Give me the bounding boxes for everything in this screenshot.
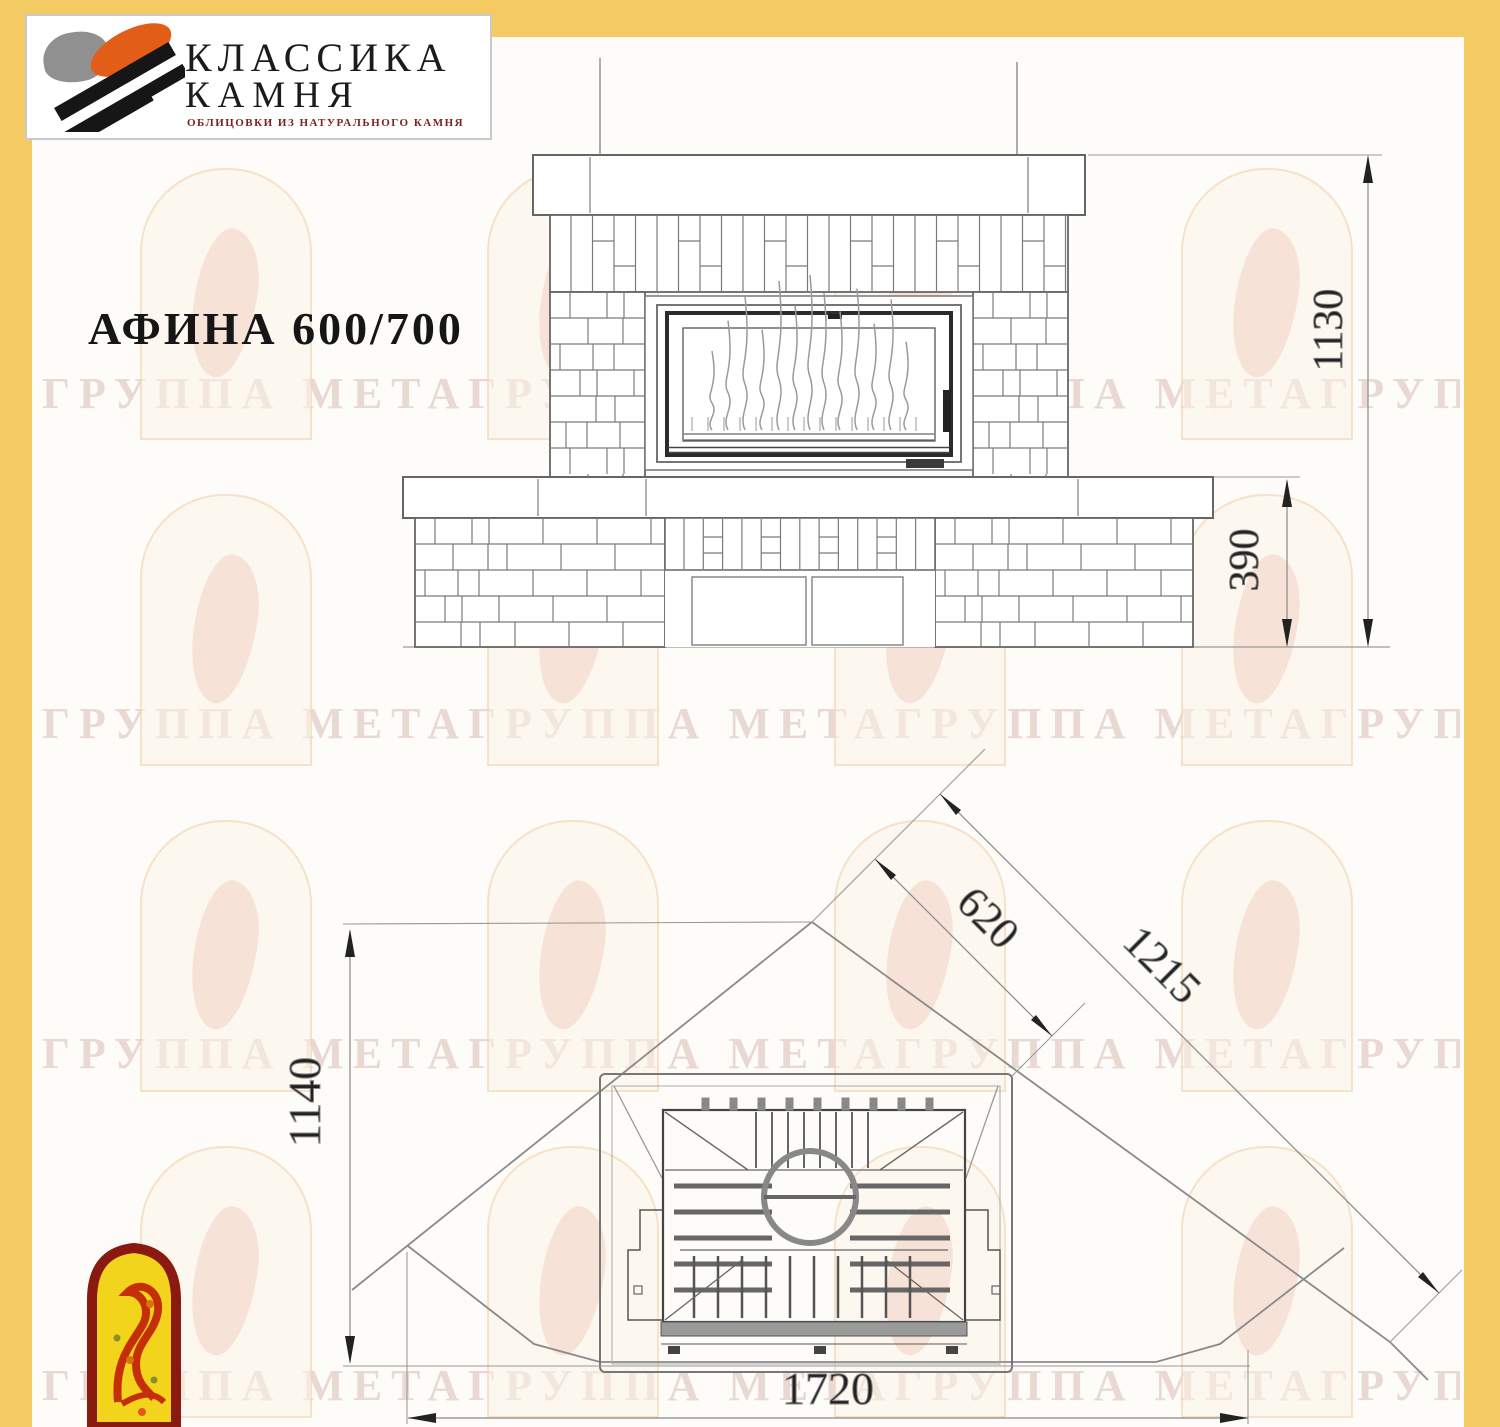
wall-right — [812, 922, 1428, 1380]
dim-label-total-height: 1130 — [1306, 289, 1352, 371]
frame-left — [0, 0, 32, 1427]
stone-base-right — [935, 518, 1193, 647]
firebox-insert — [645, 275, 973, 470]
plan-view-drawing: 1140 1720 620 — [279, 749, 1462, 1424]
stone-base-left — [415, 518, 665, 647]
door-handle — [943, 390, 951, 432]
insert-plan — [628, 1098, 1000, 1354]
logo-tagline: ОБЛИЦОВКИ ИЗ НАТУРАЛЬНОГО КАМНЯ — [187, 117, 464, 129]
wall-left — [352, 922, 812, 1290]
dimension-620-1215: 620 1215 — [812, 749, 1462, 1342]
logo-text-line2: КАМНЯ — [185, 74, 361, 117]
wood-niche-right — [812, 577, 903, 645]
frame-right — [1464, 0, 1500, 1427]
dim-label-corner-to-insert: 620 — [948, 877, 1029, 958]
wood-niche-left — [692, 577, 806, 645]
stone-emblem-icon — [35, 22, 185, 132]
mantel-shelf — [533, 155, 1085, 215]
technical-drawing: 1130 390 — [0, 0, 1500, 1427]
dim-label-depth: 1140 — [279, 1057, 330, 1147]
dim-label-corner-to-front: 1215 — [1114, 916, 1211, 1013]
dim-label-front-width: 1720 — [782, 1363, 874, 1414]
spec-sheet-page: ГРУППА МЕТАГРУППА МЕТАГРУППА МЕТАГРУППА … — [0, 0, 1500, 1427]
brick-band-top — [550, 215, 1068, 292]
dimension-1720: 1720 — [407, 1252, 1248, 1424]
dim-label-plinth-height: 390 — [1222, 529, 1268, 592]
meta-group-logo — [84, 1240, 184, 1427]
dimension-1140: 1140 — [279, 929, 1250, 1366]
page-title: АФИНА 600/700 — [88, 302, 464, 355]
front-elevation-drawing: 1130 390 — [403, 58, 1390, 647]
company-logo: КЛАССИКА КАМНЯ ОБЛИЦОВКИ ИЗ НАТУРАЛЬНОГО… — [25, 14, 492, 140]
brand-plate — [906, 459, 944, 468]
bench-slab — [403, 477, 1213, 518]
dimension-390: 390 — [1222, 479, 1292, 647]
